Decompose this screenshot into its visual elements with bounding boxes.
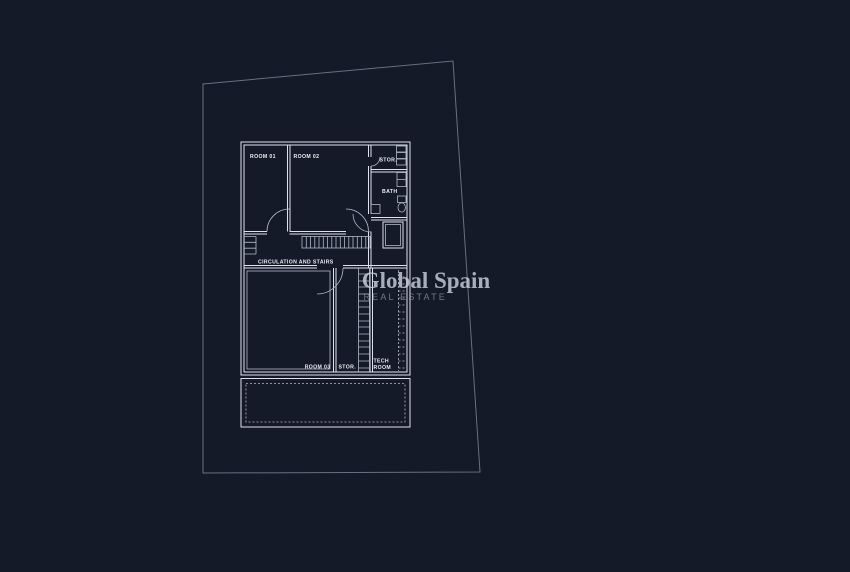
stor-lower-label: STOR.	[339, 365, 357, 371]
circulation-label: CIRCULATION AND STAIRS	[258, 260, 334, 266]
watermark-tagline: REAL ESTATE	[363, 292, 447, 302]
tech-room-label-line1: TECH	[374, 359, 390, 365]
terrace	[241, 379, 410, 428]
shaft	[383, 222, 403, 248]
room03-label: ROOM 03	[305, 365, 331, 371]
floor-plan-page: ROOM 01 ROOM 02 STOR. BATH CIRCULATION A…	[0, 0, 850, 572]
room03-inner-outline	[247, 271, 330, 369]
room02-label: ROOM 02	[294, 154, 320, 160]
building-outline	[241, 142, 410, 375]
floor-plan-drawing: ROOM 01 ROOM 02 STOR. BATH CIRCULATION A…	[0, 0, 850, 572]
room01-label: ROOM 01	[250, 154, 276, 160]
stairs	[302, 237, 370, 249]
parcel-boundary	[203, 61, 480, 473]
bath-label: BATH	[382, 189, 397, 195]
interior-walls	[244, 145, 407, 372]
storage-shelves-upper	[397, 146, 407, 165]
watermark-brand: Global Spain	[362, 268, 491, 293]
hall-closet-shelves	[244, 237, 256, 255]
stor-upper-label: STOR.	[380, 158, 398, 164]
tech-room-label-line2: ROOM	[374, 365, 392, 371]
